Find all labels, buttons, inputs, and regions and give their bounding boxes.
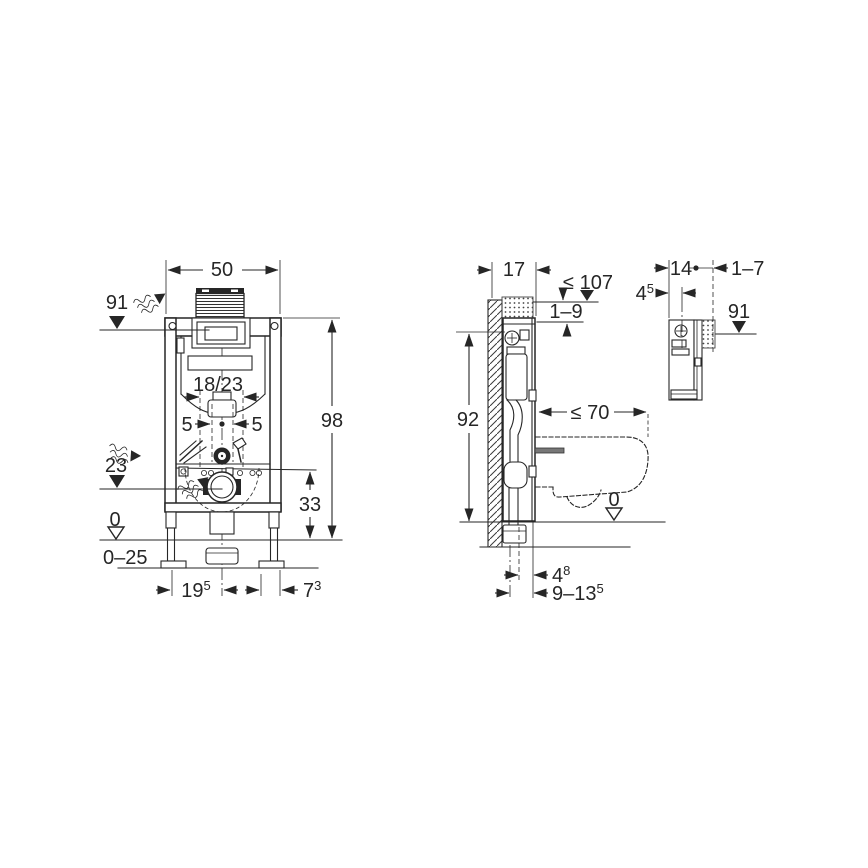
fixing-point-upper	[529, 390, 536, 401]
detail-view: 14 1–7 45 91	[636, 258, 765, 400]
dim-protrusion-range: 1–9	[549, 301, 582, 323]
dim-frame-height: 92	[457, 409, 479, 431]
dim-connection-offset: 45	[636, 281, 654, 305]
side-dimensions: 17 ≤ 107 1–9 92 ≤ 70 0	[456, 259, 665, 605]
side-frame	[503, 318, 536, 543]
fixing-point-lower	[529, 466, 536, 477]
leg-sleeve-left	[166, 512, 176, 528]
level-marker-open	[108, 527, 124, 539]
dim-depth: 17	[503, 259, 525, 281]
outlet-pipe-bottom	[503, 525, 526, 543]
outlet-elbow	[504, 462, 527, 488]
dim-wall-finish-range: 1–7	[731, 258, 764, 280]
wall-hatch	[488, 300, 502, 547]
corner-screw-right	[271, 323, 278, 330]
drain-pipe	[210, 512, 234, 534]
leg-sleeve-right	[269, 512, 279, 528]
side-view: 17 ≤ 107 1–9 92 ≤ 70 0	[456, 259, 665, 605]
leg-left	[168, 528, 175, 561]
inspection-window	[205, 327, 237, 340]
protection-box	[502, 297, 533, 318]
flush-unit	[192, 288, 250, 348]
foot-right	[259, 561, 284, 568]
wall-section	[488, 300, 502, 547]
detail-unit	[669, 320, 702, 400]
level-marker-open	[606, 508, 622, 520]
dim-outlet-range: 9–135	[552, 581, 604, 605]
dimension-origin-dot	[693, 265, 698, 270]
leg-right	[271, 528, 278, 561]
level-marker-filled	[109, 316, 125, 329]
level-marker-filled	[580, 290, 594, 301]
center-point	[219, 421, 224, 426]
dim-offset-left: 5	[181, 414, 192, 436]
level-marker-filled	[732, 321, 746, 333]
front-view: 50 91 98 18/23 5 5 23	[100, 259, 343, 602]
drain-socket	[185, 468, 259, 564]
dim-floor-range: 0–25	[103, 547, 148, 569]
flow-arrow-icon	[133, 289, 170, 316]
supply-connection	[177, 338, 184, 353]
lever	[233, 438, 246, 449]
installation-frame-drawing: 50 91 98 18/23 5 5 23	[0, 0, 868, 868]
dim-foot-offset: 195	[181, 578, 210, 602]
marker-supply-height-label: 91	[728, 301, 750, 323]
corner-screw-left	[169, 323, 176, 330]
foot-left	[161, 561, 186, 568]
dim-foot-width: 73	[303, 578, 321, 602]
wc-bowl-outline	[536, 414, 648, 507]
service-opening	[188, 356, 252, 370]
threaded-rod	[535, 448, 564, 453]
marker-outlet-height-label: 23	[105, 455, 127, 477]
mounting-mechanism	[176, 438, 316, 476]
drain-bend-bottom	[206, 548, 238, 564]
level-marker-filled	[109, 475, 125, 488]
dim-flush-pipe-spacing: 18/23	[193, 374, 243, 396]
dim-offset-right: 5	[251, 414, 262, 436]
dim-detail-depth: 14	[670, 258, 692, 280]
dim-fixing-height: 33	[299, 494, 321, 516]
side-cistern	[506, 354, 527, 400]
technical-drawing-page: 50 91 98 18/23 5 5 23	[0, 0, 868, 868]
dim-bowl-depth: ≤ 70	[571, 402, 610, 424]
dim-front-width: 50	[211, 259, 233, 281]
dim-front-height: 98	[321, 410, 343, 432]
marker-supply-height-label: 91	[106, 292, 128, 314]
